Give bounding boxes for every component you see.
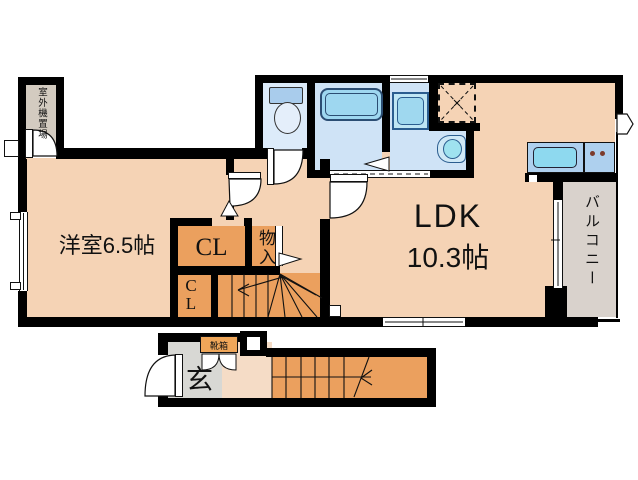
wall-cl2-right bbox=[211, 275, 218, 317]
entrance-label: 玄 bbox=[186, 358, 213, 397]
wall-west-door-jamb-b bbox=[226, 205, 234, 220]
toilet-door-leaf bbox=[267, 148, 274, 185]
wall-bottom-b bbox=[465, 317, 598, 327]
storage-label: 物入 bbox=[253, 229, 278, 267]
wall-cl-storage-divider bbox=[245, 226, 252, 266]
wall-toilet-left bbox=[255, 83, 263, 156]
refrigerator-space-icon bbox=[438, 83, 476, 123]
closet-upper-label: CL bbox=[178, 234, 245, 262]
wall-bottom-thin bbox=[598, 319, 620, 322]
wall-cl-top-b bbox=[244, 218, 252, 226]
kitchen-wall-hatch bbox=[529, 175, 537, 182]
wall-strip-top-b bbox=[266, 348, 436, 357]
closet-lower-label: CL bbox=[182, 277, 200, 313]
outdoor-unit-label: 室外機置場 bbox=[34, 87, 48, 153]
washbasin-bowl bbox=[443, 139, 462, 159]
west-window-tab-bottom bbox=[10, 282, 21, 290]
stairs-upper-floor bbox=[218, 273, 320, 317]
washroom-window bbox=[390, 75, 428, 83]
wall-west-top-b bbox=[56, 148, 268, 159]
wall-cl-top-a bbox=[170, 218, 212, 226]
wall-niche-square bbox=[329, 305, 341, 317]
balcony-label: バルコニー bbox=[581, 194, 602, 314]
wall-strip-bottom bbox=[158, 398, 436, 407]
outdoor-unit-door-leaf bbox=[25, 129, 33, 158]
kitchen-counter-divider bbox=[583, 142, 585, 173]
western-room-door-leaf bbox=[228, 172, 261, 179]
ldk-label-line2: 10.3帖 bbox=[383, 236, 513, 276]
wall-hall-ldk-low bbox=[320, 219, 330, 317]
wall-bottom-a bbox=[18, 317, 383, 327]
shoe-box-label: 靴箱 bbox=[201, 339, 237, 352]
ldk-door-leaf bbox=[330, 174, 368, 182]
meter-box bbox=[4, 140, 19, 157]
kitchen-sink-icon bbox=[533, 147, 577, 168]
ldk-south-window bbox=[383, 317, 465, 327]
wall-balcony-top-chunk bbox=[553, 173, 563, 200]
wall-outdoor-right bbox=[56, 77, 64, 152]
front-door-leaf bbox=[175, 354, 183, 397]
pillar-hatch bbox=[247, 337, 260, 350]
stove-knob-icon-1 bbox=[590, 151, 595, 156]
wall-balcony-bottom-chunk bbox=[545, 286, 567, 317]
stove-knob-icon-2 bbox=[600, 151, 605, 156]
west-window-tab-top bbox=[10, 212, 21, 220]
wall-hall-ldk-up bbox=[320, 159, 330, 178]
wall-under-fridge bbox=[434, 123, 480, 131]
stairs-lower-floor bbox=[272, 357, 427, 398]
wall-sanitary-top bbox=[255, 75, 623, 83]
balcony-rail bbox=[616, 132, 618, 318]
wall-west-left-a bbox=[18, 159, 27, 212]
ldk-label-line1: LDK bbox=[388, 198, 508, 235]
bathtub-inner-line bbox=[325, 93, 378, 116]
wall-bath-washroom bbox=[382, 83, 390, 152]
wall-washroom-bottom bbox=[430, 170, 470, 178]
west-window bbox=[19, 212, 28, 291]
toilet-bowl-icon bbox=[274, 102, 301, 134]
wall-mid-band bbox=[170, 266, 280, 275]
wall-toilet-bath bbox=[307, 83, 315, 178]
wall-right-upper bbox=[615, 75, 623, 119]
wall-kitchen-bottom bbox=[525, 173, 617, 182]
balcony-sliding-window bbox=[553, 200, 563, 288]
floorplan: 洋室6.5帖 LDK 10.3帖 CL CL 物入 バルコニー 玄 靴箱 室外機… bbox=[0, 0, 638, 480]
western-room-label: 洋室6.5帖 bbox=[36, 228, 178, 260]
washing-machine-pan-inner bbox=[397, 97, 424, 125]
